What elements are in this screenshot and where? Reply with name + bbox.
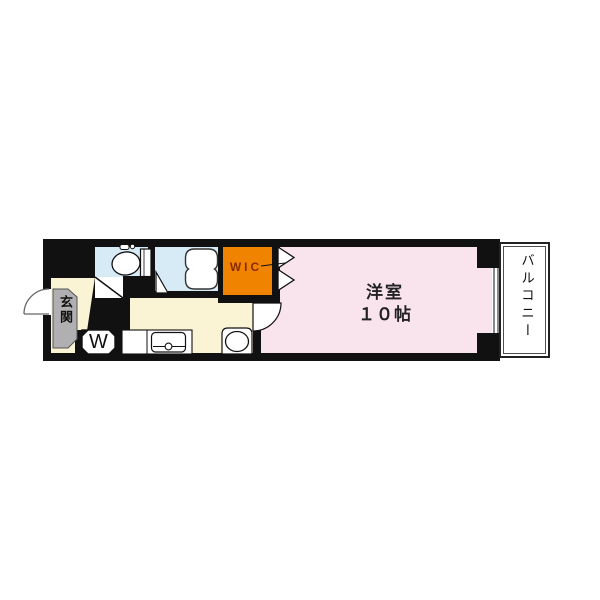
floor-plan-page: 玄関 W WIC 洋室 １０帖 バルコニー [0, 0, 600, 600]
floor-plan-drawing [0, 0, 600, 600]
pillar-bottom-right [477, 333, 493, 354]
wall-block-below-toilet [123, 276, 155, 298]
main-room-size-label: １０帖 [340, 300, 430, 325]
balcony-label: バルコニー [516, 253, 536, 341]
washbasin-icon [222, 328, 252, 354]
wall-right-bottom [492, 333, 500, 361]
window-icon [492, 268, 500, 333]
pillar-top-right [477, 246, 493, 268]
wall-kitchen-room [253, 328, 261, 361]
wall-wic-bottom [218, 295, 280, 303]
wall-block-topleft [50, 246, 95, 278]
wall-right-top [492, 239, 500, 268]
bathtub-icon [186, 249, 218, 289]
wic-label: WIC [221, 260, 271, 274]
wall-top [43, 239, 500, 247]
washer-space-label: W [82, 331, 115, 353]
wall-washer-right [115, 330, 122, 354]
entrance-label: 玄関 [56, 295, 75, 325]
kitchen-sink-icon [122, 330, 192, 354]
entrance-opening [43, 289, 51, 315]
wall-bath-wic [218, 246, 223, 303]
